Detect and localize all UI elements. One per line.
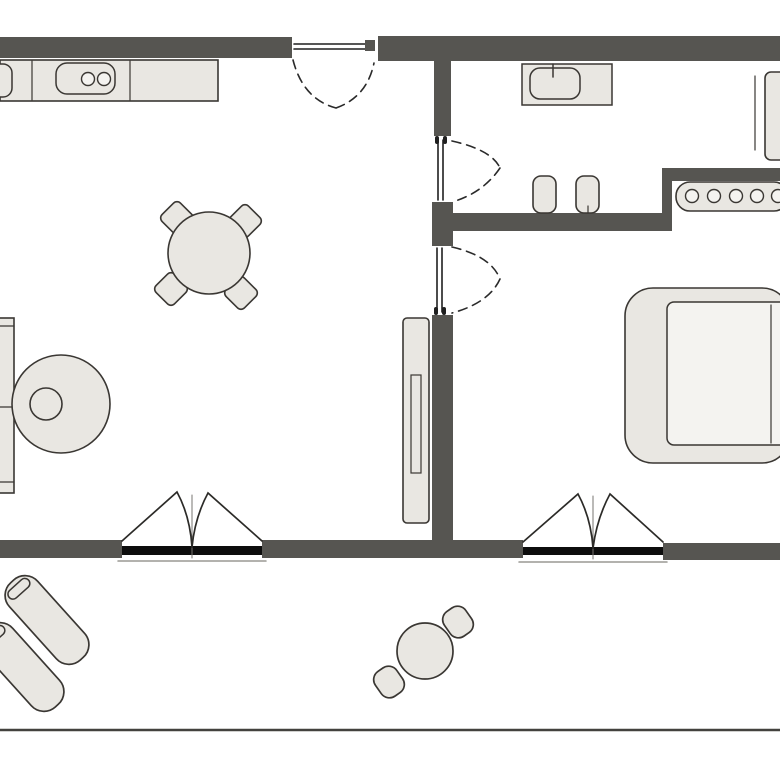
bed-mattress xyxy=(667,302,780,445)
bathroom-door-hinge-1 xyxy=(435,136,439,144)
bathroom-sink xyxy=(530,68,580,99)
bedroom-door-hinge-1 xyxy=(434,307,438,315)
wall-bedroom-top xyxy=(672,168,780,181)
balcony-table xyxy=(397,623,453,679)
entry-door-swing-arc xyxy=(293,60,374,108)
radiator-circle-2 xyxy=(708,190,721,203)
wall-bottom-right xyxy=(663,543,780,560)
hallway-stool-1 xyxy=(533,176,556,213)
wardrobe xyxy=(403,318,429,523)
bathroom-door-swing-arc xyxy=(452,141,500,202)
round-lounge-chair-cushion xyxy=(30,388,62,420)
wall-hallway xyxy=(432,213,672,231)
entry-door-hinge xyxy=(365,40,375,51)
floor-plan-page xyxy=(0,0,780,780)
wall-bottom-middle xyxy=(262,540,523,558)
bathroom-cabinet xyxy=(765,72,780,160)
wall-bottom-left xyxy=(0,540,122,558)
dining-table xyxy=(168,212,250,294)
cooktop-burner-2 xyxy=(98,73,111,86)
wall-top-left xyxy=(0,37,292,58)
bedroom-door-swing-arc xyxy=(452,247,500,313)
cooktop-burner-1 xyxy=(82,73,95,86)
bedroom-door-hinge-2 xyxy=(442,307,446,315)
kitchen-sink-partial xyxy=(0,64,12,97)
wall-divider-lower xyxy=(432,315,453,550)
radiator-circle-3 xyxy=(730,190,743,203)
bathroom-door-hinge-2 xyxy=(443,136,447,144)
radiator-circle-1 xyxy=(686,190,699,203)
radiator-circle-4 xyxy=(751,190,764,203)
wall-divider-upper xyxy=(434,57,451,136)
floor-plan-svg xyxy=(0,0,780,780)
wall-hallway-riser xyxy=(662,168,672,231)
radiator-circle-5 xyxy=(772,190,780,203)
